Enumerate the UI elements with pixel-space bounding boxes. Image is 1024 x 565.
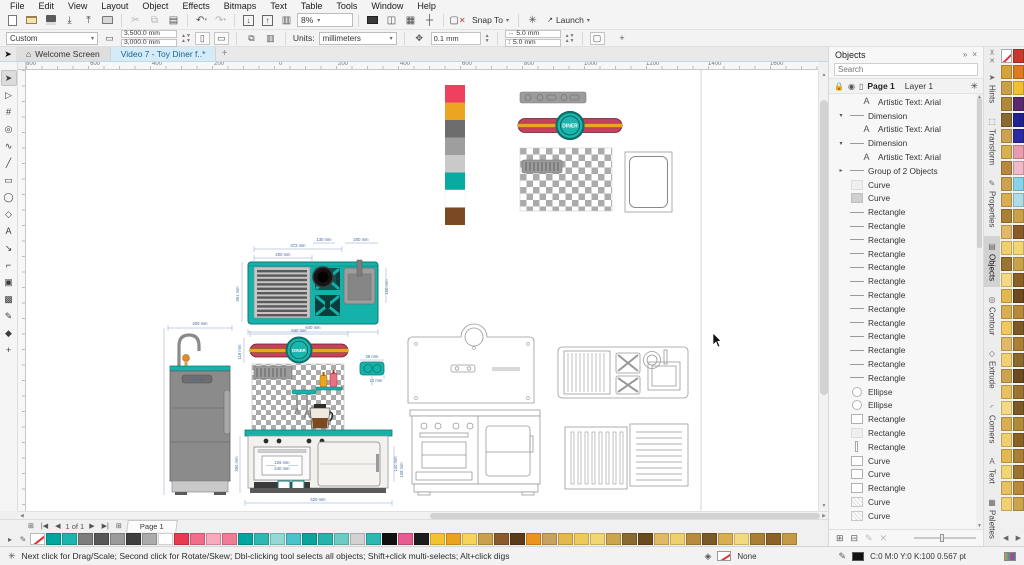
palette-swatch[interactable] <box>558 533 573 545</box>
snap-to-dropdown[interactable]: Snap To ▾ <box>468 15 513 25</box>
previous-page-icon[interactable]: ◀ <box>53 522 62 530</box>
palette-swatch[interactable] <box>1001 497 1012 511</box>
oven: 226 mm 240 mm <box>254 447 310 480</box>
docker-tab-strip: ⊼ ✕ ➤ Hints ⬚ Transform ✎ Properties ▤ O… <box>983 47 1000 546</box>
top-view-colored[interactable]: 372 mm 200 mm 130 mm 200 mm 361 mm 140 m… <box>235 237 389 335</box>
add-page-icon[interactable]: ⊞ <box>114 522 124 530</box>
palette-swatch[interactable] <box>1013 337 1024 351</box>
palette-swatch[interactable] <box>318 533 333 545</box>
door-outline[interactable] <box>625 152 672 212</box>
docker-close-icon[interactable]: × <box>972 50 977 59</box>
palette-swatch[interactable] <box>1001 177 1012 191</box>
palette-swatch[interactable] <box>1001 401 1012 415</box>
cut-icon[interactable]: ✂ <box>127 13 144 28</box>
docker-tab-label: Contour <box>988 307 997 335</box>
palette-swatch[interactable] <box>1013 209 1024 223</box>
more-tools-button[interactable]: + <box>1 342 17 358</box>
palette-swatch[interactable] <box>1001 161 1012 175</box>
side-view[interactable]: 400 mm 148 mm <box>164 321 232 495</box>
expander-icon[interactable]: ▾ <box>837 140 845 147</box>
palette-swatch[interactable] <box>1013 401 1024 415</box>
palette-swatch[interactable] <box>1013 497 1024 511</box>
units-select[interactable]: millimeters ▾ <box>319 32 397 45</box>
palette-swatch[interactable] <box>46 533 61 545</box>
new-master-layer-icon[interactable]: ⊟ <box>851 533 859 544</box>
palette-swatch[interactable] <box>1013 81 1024 95</box>
palette-swatch[interactable] <box>1001 385 1012 399</box>
pick-tool[interactable]: ➤ <box>1 70 17 86</box>
palette-swatch[interactable] <box>222 533 237 545</box>
menu-item[interactable]: Layout <box>94 1 135 11</box>
duplicate-y-field[interactable]: ↕5.0 mm <box>505 39 561 47</box>
palette-scroll-left-icon[interactable]: ◀ <box>1003 534 1008 542</box>
object-list-item[interactable]: Rectangle <box>829 316 983 330</box>
canvas-vertical-scrollbar[interactable]: ▲ ▼ <box>818 70 828 511</box>
docker-tab-objects[interactable]: ▤ Objects <box>984 236 1000 287</box>
object-list-item[interactable]: Rectangle <box>829 330 983 344</box>
show-guidelines-button[interactable]: ┼ <box>421 13 438 28</box>
dim-label: 108 mm <box>399 462 404 478</box>
page-width-field[interactable]: 3,500.0 mm <box>121 30 177 38</box>
palette-swatch[interactable] <box>702 533 717 545</box>
menu-item[interactable]: Tools <box>329 1 364 11</box>
object-list-item[interactable]: ▾ Dimension <box>829 136 983 150</box>
object-list-item[interactable]: ▾ Dimension <box>829 109 983 123</box>
docker-tab-text[interactable]: A Text <box>984 451 1000 490</box>
docker-flyout-icon[interactable]: » <box>963 50 967 59</box>
palette-swatch[interactable] <box>494 533 509 545</box>
spinner-down-icon[interactable]: ▲▼ <box>181 39 191 43</box>
object-list-item[interactable]: Rectangle <box>829 481 983 495</box>
portrait-button[interactable]: ▯ <box>195 32 210 45</box>
all-pages-button[interactable]: ⧉ <box>244 32 259 45</box>
object-thumbnail <box>850 295 864 296</box>
last-page-icon[interactable]: ▶| <box>100 522 111 530</box>
palette-swatch[interactable] <box>1013 65 1024 79</box>
palette-swatch[interactable] <box>110 533 125 545</box>
palette-swatch[interactable] <box>1001 193 1012 207</box>
palette-swatch[interactable] <box>414 533 429 545</box>
palette-swatch[interactable] <box>1001 113 1012 127</box>
palette-swatch[interactable] <box>1013 433 1024 447</box>
docker-tab-palettes[interactable]: ▦ Palettes <box>984 492 1000 545</box>
scroll-down-icon[interactable]: ▼ <box>976 523 983 529</box>
drop-shadow-tool[interactable]: ▣ <box>1 274 17 290</box>
palette-swatch[interactable] <box>1001 145 1012 159</box>
palette-swatch[interactable] <box>462 533 477 545</box>
palette-swatch[interactable] <box>574 533 589 545</box>
vertical-ruler[interactable] <box>18 70 26 511</box>
palette-swatch[interactable] <box>1013 177 1024 191</box>
new-document-button[interactable] <box>4 13 21 28</box>
palette-swatch[interactable] <box>1001 481 1012 495</box>
object-list-item[interactable]: Rectangle <box>829 343 983 357</box>
object-list-item[interactable]: Curve <box>829 509 983 523</box>
palette-swatch[interactable] <box>94 533 109 545</box>
palette-swatch[interactable] <box>1001 129 1012 143</box>
palette-swatch[interactable] <box>1001 97 1012 111</box>
color-proof-icon[interactable] <box>1004 552 1016 561</box>
snap-off-icon[interactable]: ▢✕ <box>449 13 466 28</box>
vertical-scroll-thumb[interactable] <box>820 100 828 395</box>
import-dialog-button[interactable]: ↓ <box>240 13 257 28</box>
palette-swatch[interactable] <box>670 533 685 545</box>
object-list-item[interactable]: Rectangle <box>829 274 983 288</box>
object-label: Artistic Text: Arial <box>878 152 941 162</box>
diner-logo-text: DINER <box>562 124 578 130</box>
object-list-item[interactable]: Rectangle <box>829 357 983 371</box>
palette-swatch[interactable] <box>1001 417 1012 431</box>
palette-swatch[interactable] <box>126 533 141 545</box>
object-label: Curve <box>868 193 890 203</box>
object-label: Ellipse <box>868 400 892 410</box>
palette-swatch[interactable] <box>510 533 525 545</box>
menu-item[interactable]: Text <box>263 1 294 11</box>
palette-swatch[interactable] <box>718 533 733 545</box>
layer-header-row[interactable]: 🔒 ◉ ▯ Page 1 Layer 1 ✳ <box>829 78 983 94</box>
palette-scroll-right-icon[interactable]: ▶ <box>1016 534 1021 542</box>
line-art-top-view[interactable] <box>558 347 688 398</box>
thumbnail-size-slider[interactable] <box>914 537 976 539</box>
dimension-tool[interactable]: ↘ <box>1 240 17 256</box>
palette-swatch[interactable] <box>1013 449 1024 463</box>
ellipse-tool[interactable]: ◯ <box>1 189 17 205</box>
object-list-item[interactable]: Rectangle <box>829 440 983 454</box>
docker-tab-icon: ➤ <box>989 73 996 82</box>
menu-item[interactable]: Edit <box>32 1 62 11</box>
toolbar-separator <box>404 32 405 45</box>
objects-scroll-thumb[interactable] <box>977 98 982 248</box>
no-fill-swatch[interactable] <box>30 533 45 545</box>
palette-swatch[interactable] <box>1001 353 1012 367</box>
ruler-origin-corner[interactable] <box>18 62 26 70</box>
new-layer-icon[interactable]: ⊞ <box>836 533 844 544</box>
fill-bucket-icon[interactable]: ◈ <box>704 551 711 562</box>
checkerboard-sample[interactable] <box>520 148 612 211</box>
spinner-up-icon[interactable]: ▲▼ <box>181 34 191 38</box>
new-tab-button[interactable]: + <box>216 47 232 61</box>
palette-swatch[interactable] <box>1001 321 1012 335</box>
palette-swatch[interactable] <box>1013 289 1024 303</box>
object-list-item[interactable]: Curve <box>829 192 983 206</box>
show-rulers-button[interactable]: ◫ <box>383 13 400 28</box>
palette-swatch[interactable] <box>382 533 397 545</box>
rectangle-tool[interactable]: ▭ <box>1 172 17 188</box>
lock-icon[interactable]: 🔒 <box>834 82 844 91</box>
horizontal-ruler[interactable]: 800 600 400 200 0 200 400 600 800 1000 1… <box>26 62 818 70</box>
palette-swatch[interactable] <box>1013 241 1024 255</box>
palette-swatch[interactable] <box>1013 129 1024 143</box>
drawing-canvas[interactable]: DINER 372 mm 200 mm 130 mm 200 mm 361 mm… <box>26 70 818 511</box>
object-list-item[interactable]: Rectangle <box>829 288 983 302</box>
object-list-item[interactable]: Curve <box>829 495 983 509</box>
object-thumbnail <box>851 497 863 507</box>
expander-icon[interactable]: ▸ <box>837 167 845 174</box>
outline-info-text: C:0 M:0 Y:0 K:100 0.567 pt <box>870 552 966 561</box>
palette-swatch[interactable] <box>1013 161 1024 175</box>
palette-swatch[interactable] <box>782 533 797 545</box>
palette-swatch[interactable] <box>1001 305 1012 319</box>
save-button[interactable] <box>42 13 59 28</box>
palette-swatch[interactable] <box>1001 81 1012 95</box>
text-tool[interactable]: A <box>1 223 17 239</box>
palette-swatch[interactable] <box>1013 353 1024 367</box>
palette-swatch[interactable] <box>1013 225 1024 239</box>
palette-swatch[interactable] <box>1001 209 1012 223</box>
menu-item[interactable]: Help <box>410 1 443 11</box>
palette-swatch[interactable] <box>606 533 621 545</box>
menu-item[interactable]: Object <box>135 1 175 11</box>
docker-tab-extrude[interactable]: ◇ Extrude <box>984 343 1000 395</box>
docker-tab-label: Extrude <box>988 361 997 389</box>
palette-swatch[interactable] <box>1013 49 1024 63</box>
palette-swatch[interactable] <box>1013 97 1024 111</box>
two-point-line-tool[interactable]: ╱ <box>1 155 17 171</box>
palette-swatch[interactable] <box>286 533 301 545</box>
docker-tab-corners[interactable]: ◜ Corners <box>984 397 1000 449</box>
spinner-icon[interactable]: ▲▼ <box>565 39 575 43</box>
copy-icon[interactable]: ⧉ <box>146 13 163 28</box>
object-list-item[interactable]: Rectangle <box>829 247 983 261</box>
palette-swatch[interactable] <box>366 533 381 545</box>
page-preset-select[interactable]: Custom ▾ <box>6 32 98 45</box>
palette-swatch[interactable] <box>270 533 285 545</box>
diner-logo[interactable]: DINER <box>518 112 622 139</box>
palette-swatch[interactable] <box>1013 369 1024 383</box>
palette-swatch[interactable] <box>238 533 253 545</box>
palette-swatch[interactable] <box>142 533 157 545</box>
menu-item[interactable]: Effects <box>175 1 216 11</box>
object-label: Curve <box>868 469 890 479</box>
interactive-fill-tool[interactable]: ◆ <box>1 325 17 341</box>
nudge-distance-field[interactable]: 0.1 mm <box>431 32 481 45</box>
object-list-item[interactable]: Rectangle <box>829 302 983 316</box>
menu-item[interactable]: Window <box>364 1 410 11</box>
object-label: Rectangle <box>868 414 905 424</box>
connector-tool[interactable]: ⌐ <box>1 257 17 273</box>
objects-docker-title-row: Objects » × <box>829 47 983 62</box>
eyedropper-icon[interactable]: ✎ <box>17 535 29 544</box>
artwork-gray-bar[interactable] <box>520 92 586 103</box>
spinner-icon[interactable]: ▲ <box>485 34 490 38</box>
print-button[interactable] <box>99 13 116 28</box>
palette-swatch[interactable] <box>174 533 189 545</box>
tab-toy-diner-document[interactable]: Video 7 - Toy Diner f..* <box>111 47 217 61</box>
palette-swatch[interactable] <box>638 533 653 545</box>
zoom-tool[interactable]: ◎ <box>1 121 17 137</box>
palette-swatch[interactable] <box>1001 337 1012 351</box>
palette-swatch[interactable] <box>1013 465 1024 479</box>
palette-swatch[interactable] <box>542 533 557 545</box>
landscape-button[interactable]: ▭ <box>214 32 229 45</box>
palette-swatch[interactable] <box>1001 449 1012 463</box>
paste-icon[interactable]: ▤ <box>165 13 182 28</box>
eyedropper-tool[interactable]: ✎ <box>1 308 17 324</box>
object-list-item[interactable]: Artistic Text: Arial <box>829 123 983 137</box>
toolbar-separator <box>497 32 498 45</box>
customize-plus-button[interactable]: + <box>615 32 630 45</box>
palette-swatch[interactable] <box>734 533 749 545</box>
palette-swatch[interactable] <box>478 533 493 545</box>
object-list-item[interactable]: Artistic Text: Arial <box>829 150 983 164</box>
expander-icon[interactable]: ▾ <box>837 112 845 119</box>
next-page-icon[interactable]: ▶ <box>87 522 96 530</box>
palette-swatch[interactable] <box>1001 465 1012 479</box>
palette-swatch[interactable] <box>526 533 541 545</box>
duplicate-x-field[interactable]: ↔5.0 mm <box>505 30 561 38</box>
object-list-item[interactable]: Rectangle <box>829 371 983 385</box>
object-list-item[interactable]: Rectangle <box>829 426 983 440</box>
first-page-icon[interactable]: |◀ <box>39 522 50 530</box>
small-part-detail[interactable]: 28 mm 12 mm <box>360 354 384 386</box>
edit-layer-icon[interactable]: ✎ <box>865 533 873 544</box>
launch-dropdown[interactable]: ↗ Launch ▾ <box>543 15 594 25</box>
delete-icon[interactable]: ✕ <box>880 533 888 544</box>
palette-swatch[interactable] <box>1013 385 1024 399</box>
palette-swatch[interactable] <box>1013 193 1024 207</box>
options-gear-icon[interactable]: ✳ <box>524 13 541 28</box>
palette-swatch[interactable] <box>350 533 365 545</box>
docker-pin-icon[interactable]: ⊼ <box>989 49 994 57</box>
line-art-grille-panels[interactable] <box>565 424 688 489</box>
palette-swatch[interactable] <box>1001 65 1012 79</box>
object-thumbnail <box>850 170 864 171</box>
object-list-item[interactable]: Rectangle <box>829 233 983 247</box>
object-list-item[interactable]: Curve <box>829 468 983 482</box>
export-dialog-button[interactable]: ↑ <box>259 13 276 28</box>
publish-pdf-button[interactable]: ▥ <box>278 13 295 28</box>
object-list-item[interactable]: Ellipse <box>829 385 983 399</box>
line-art-front-view[interactable] <box>408 324 540 495</box>
zoom-level-combo[interactable]: 8% ▾ <box>297 13 353 27</box>
object-list-item[interactable]: Rectangle <box>829 205 983 219</box>
undo-button[interactable]: ↶▾ <box>193 13 210 28</box>
docker-close-icon[interactable]: ✕ <box>989 57 995 65</box>
export-button[interactable]: ⤒ <box>80 13 97 28</box>
objects-search-input[interactable] <box>835 65 977 74</box>
spinner-icon[interactable]: ▼ <box>485 39 490 43</box>
palette-swatch[interactable] <box>622 533 637 545</box>
palette-swatch[interactable] <box>1001 225 1012 239</box>
palette-swatch[interactable] <box>1013 145 1024 159</box>
artwork-color-swatches[interactable] <box>445 85 465 225</box>
palette-swatch[interactable] <box>750 533 765 545</box>
palette-swatch[interactable] <box>334 533 349 545</box>
palette-swatch[interactable] <box>1001 241 1012 255</box>
object-list-item[interactable]: Rectangle <box>829 261 983 275</box>
object-list-item[interactable]: Curve <box>829 454 983 468</box>
palette-swatch[interactable] <box>78 533 93 545</box>
object-list-item[interactable]: Rectangle <box>829 412 983 426</box>
menu-item[interactable]: View <box>61 1 94 11</box>
duplicate-x-value: 5.0 mm <box>516 30 539 37</box>
palette-swatch[interactable] <box>654 533 669 545</box>
object-label: Rectangle <box>868 221 905 231</box>
object-list-item[interactable]: Ellipse <box>829 399 983 413</box>
redo-button[interactable]: ↷▾ <box>212 13 229 28</box>
object-list-item[interactable]: Rectangle <box>829 219 983 233</box>
tab-welcome-screen[interactable]: ⌂ Welcome Screen <box>16 47 111 61</box>
palette-swatch[interactable] <box>590 533 605 545</box>
palette-swatch[interactable] <box>1013 305 1024 319</box>
shape-tool[interactable]: ▷ <box>1 87 17 103</box>
import-button[interactable]: ⤓ <box>61 13 78 28</box>
slider-knob[interactable] <box>940 534 944 542</box>
object-list-item[interactable]: Curve <box>829 178 983 192</box>
palette-swatch[interactable] <box>430 533 445 545</box>
palette-swatch[interactable] <box>398 533 413 545</box>
palette-swatch[interactable] <box>766 533 781 545</box>
outline-pen-icon[interactable]: ✎ <box>839 551 847 562</box>
canvas-horizontal-scrollbar[interactable]: ◀ ▶ <box>18 511 828 519</box>
fill-none-swatch[interactable] <box>717 551 731 561</box>
palette-swatch[interactable] <box>1013 113 1024 127</box>
transparency-tool[interactable]: ▩ <box>1 291 17 307</box>
front-view-colored[interactable]: 640 mm 119 mm DINER <box>234 328 404 506</box>
palette-swatch[interactable] <box>1001 257 1012 271</box>
open-button[interactable] <box>23 13 40 28</box>
layer-options-gear-icon[interactable]: ✳ <box>970 81 978 92</box>
units-label: Units: <box>293 33 315 43</box>
docker-tab-transform[interactable]: ⬚ Transform <box>984 111 1000 171</box>
palette-swatch[interactable] <box>1001 369 1012 383</box>
eye-icon[interactable]: ◉ <box>848 82 855 91</box>
add-page-icon[interactable]: ⊞ <box>26 522 36 530</box>
menu-item[interactable]: Bitmaps <box>217 1 264 11</box>
palette-swatch[interactable] <box>62 533 77 545</box>
docker-tab-hints[interactable]: ➤ Hints <box>984 67 1000 109</box>
page-height-field[interactable]: 3,000.0 mm <box>121 39 177 47</box>
palette-swatch[interactable] <box>1013 321 1024 335</box>
palette-swatch[interactable] <box>158 533 173 545</box>
show-grid-button[interactable]: ▦ <box>402 13 419 28</box>
palette-swatch[interactable] <box>1013 257 1024 271</box>
objects-search-box[interactable] <box>834 63 978 76</box>
object-thumbnail <box>851 483 863 493</box>
palette-swatch[interactable] <box>1013 273 1024 287</box>
palette-swatch[interactable] <box>1013 481 1024 495</box>
page-1-tab[interactable]: Page 1 <box>126 520 177 532</box>
docker-tab-contour[interactable]: ◎ Contour <box>984 289 1000 341</box>
palette-swatch[interactable] <box>190 533 205 545</box>
current-page-button[interactable]: ▥ <box>263 32 278 45</box>
treat-as-filled-button[interactable]: ▢ <box>590 32 605 45</box>
spinner-icon[interactable]: ▲▼ <box>565 34 575 38</box>
freehand-tool[interactable]: ∿ <box>1 138 17 154</box>
full-screen-preview-button[interactable] <box>364 13 381 28</box>
polygon-tool[interactable]: ◇ <box>1 206 17 222</box>
palette-swatch[interactable] <box>1013 417 1024 431</box>
palette-swatch[interactable] <box>686 533 701 545</box>
objects-scrollbar[interactable]: ▲ ▼ <box>976 94 983 529</box>
palette-swatch[interactable] <box>1001 433 1012 447</box>
object-list-item[interactable]: Artistic Text: Arial <box>829 95 983 109</box>
palette-swatch[interactable] <box>254 533 269 545</box>
palette-swatch[interactable] <box>1001 273 1012 287</box>
menu-item[interactable]: File <box>3 1 32 11</box>
crop-tool[interactable]: # <box>1 104 17 120</box>
palette-swatch[interactable] <box>446 533 461 545</box>
palette-swatch[interactable] <box>206 533 221 545</box>
palette-swatch[interactable] <box>1001 289 1012 303</box>
palette-swatch[interactable] <box>302 533 317 545</box>
docker-tab-properties[interactable]: ✎ Properties <box>984 173 1000 233</box>
no-fill-swatch[interactable] <box>1001 49 1012 63</box>
menu-item[interactable]: Table <box>294 1 330 11</box>
object-list-item[interactable]: ▸ Group of 2 Objects <box>829 164 983 178</box>
outline-color-swatch[interactable] <box>852 552 864 561</box>
palette-options-icon[interactable]: ▸ <box>4 535 16 544</box>
